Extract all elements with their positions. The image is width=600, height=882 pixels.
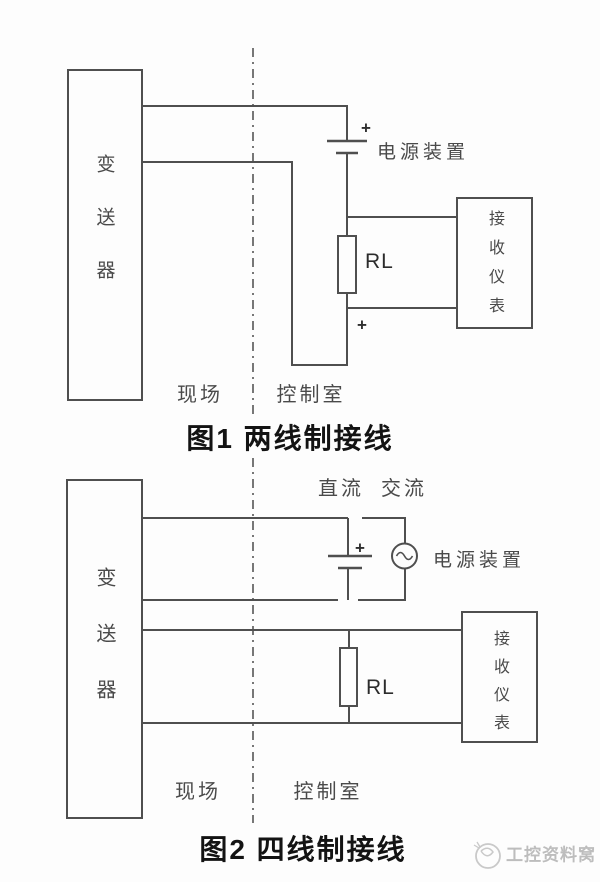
fig1-load-resistor-label: RL: [365, 251, 394, 272]
wiring-diagram-page: 变送器 + 电源装置 RL 接收仪表 + 现场 控制室 图1 两线制接线 变送器…: [0, 0, 600, 882]
fig2-load-resistor-label: RL: [366, 677, 395, 698]
fig2-dc-option-label: 直流: [318, 479, 364, 499]
fig1-receiver-label: 接收仪表: [486, 210, 502, 326]
fig1-wire-battery-to-receiver: [347, 154, 457, 217]
fig2-wire2-right: [358, 569, 405, 601]
fig2-field-zone-label: 现场: [175, 782, 221, 802]
fig1-wire-return-loop: [142, 162, 347, 365]
fig1-wire-top: [142, 106, 347, 140]
watermark-text: 工控资料窝: [506, 847, 596, 864]
fig2-circuit: [67, 458, 537, 823]
fig1-field-zone-label: 现场: [177, 385, 223, 405]
fig2-resistor-body: [340, 648, 357, 706]
fig2-receiver-label: 接收仪表: [491, 630, 507, 742]
fig2-ac-option-label: 交流: [381, 479, 427, 499]
fig2-wire1-right: [362, 518, 405, 544]
fig1-caption: 图1 两线制接线: [186, 425, 393, 453]
fig1-circuit: [68, 48, 532, 416]
fig2-ac-sine-wave: [397, 553, 413, 560]
fig2-power-supply-label: 电源装置: [433, 551, 525, 570]
fig2-plus-sign: +: [355, 540, 365, 557]
watermark-logo-icon: [474, 842, 500, 868]
fig1-transmitter-label: 变送器: [95, 154, 114, 313]
fig1-plus-sign-top: +: [361, 120, 371, 137]
fig1-resistor-body: [338, 236, 356, 293]
fig1-control-room-zone-label: 控制室: [277, 385, 346, 405]
fig1-plus-sign-bottom: +: [357, 317, 367, 334]
fig2-transmitter-label: 变送器: [94, 567, 114, 735]
fig1-power-supply-label: 电源装置: [377, 143, 469, 162]
fig2-control-room-zone-label: 控制室: [294, 782, 363, 802]
fig2-caption: 图2 四线制接线: [199, 836, 406, 864]
